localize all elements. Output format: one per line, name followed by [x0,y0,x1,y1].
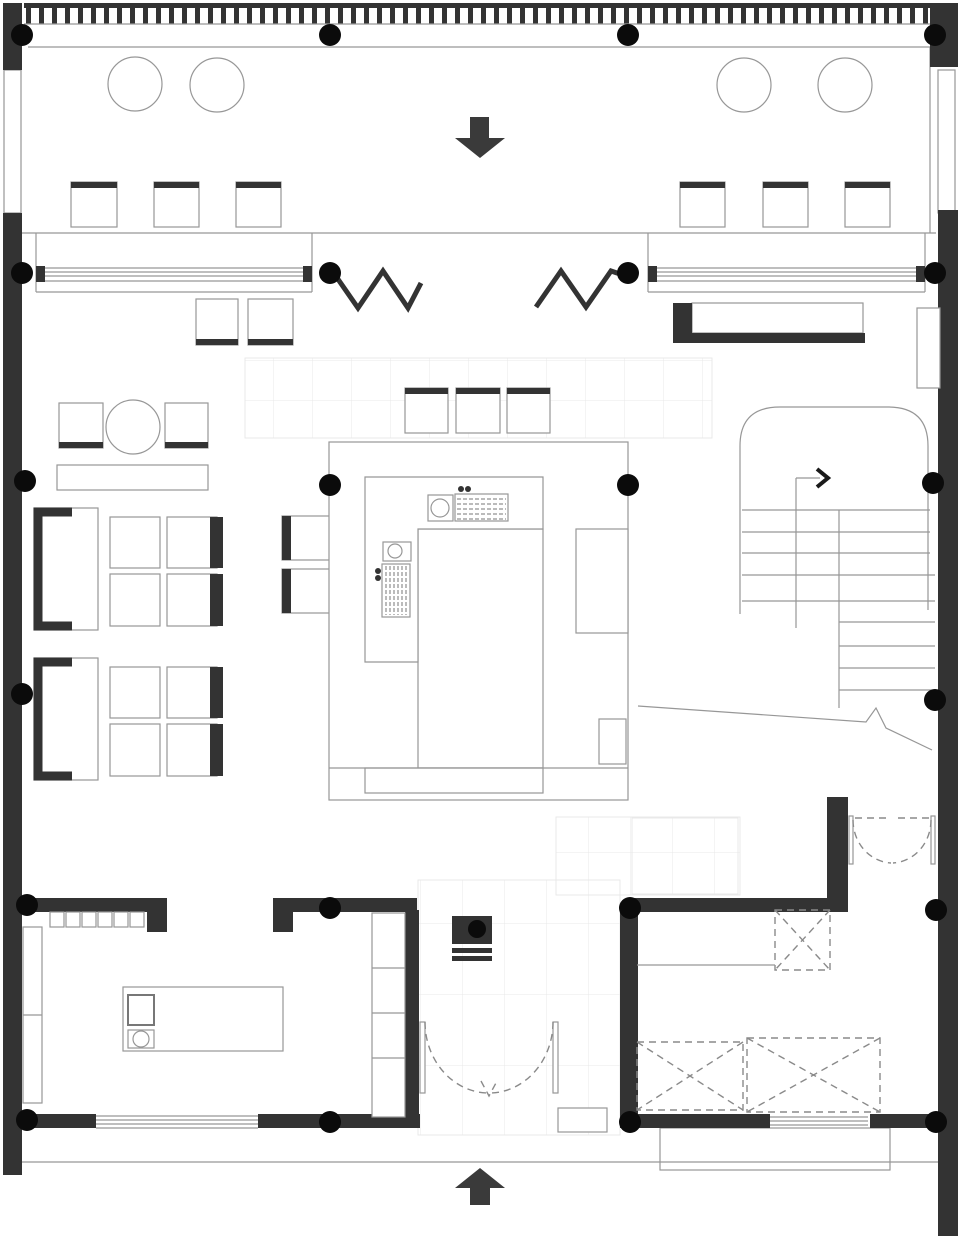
hall-stool-north-back [248,339,293,345]
sideboard-group [692,303,940,388]
lounge-chair [165,403,208,448]
column [11,24,33,46]
side-chair-back [282,516,291,560]
exterior-wall [938,210,958,1236]
cooktop-knob [375,575,381,581]
cooktop-grill-h [455,494,508,521]
side-chair-back [282,569,291,613]
entry-step-group [558,1108,607,1132]
side-wall-window [938,70,955,213]
hall-stove-ring-group [468,920,486,938]
entrance-arrow-north-group [455,117,505,158]
cooktop-grill-v-group [382,564,410,617]
sideboard-back [673,303,692,343]
terrace-table [717,58,771,112]
terrace-stool [845,182,890,227]
lounge-chair-back [165,442,208,448]
kitchen-island [365,768,543,793]
terrace-stool-back [154,182,199,188]
column [319,474,341,496]
hall-stool-north [196,299,238,345]
sw-worktable [128,1030,154,1048]
lounge-chair [59,403,103,448]
column [319,262,341,284]
terrace-stool-back [680,182,725,188]
lounge-bench-group [57,465,208,490]
hall-stove-unit [452,956,492,961]
sw-counter-item [98,912,112,927]
sofa [34,658,98,780]
cooktop-grill-h-group [455,494,508,521]
room-sw-wall [273,898,417,912]
side-chair-group [282,516,330,613]
glazing-caps [36,266,45,282]
column [924,262,946,284]
hall-stool-north [248,299,293,345]
lounge-chair-back [59,442,103,448]
lounge-bench [57,465,208,490]
ottoman-group [110,517,217,776]
ottoman-back [210,517,223,568]
entry-step [558,1108,607,1132]
sideboard [692,303,863,333]
entrance-arrow-north [455,117,505,158]
tile-floor [418,880,620,1135]
south-terrace-slab-group [660,1128,890,1170]
cooktop-knob [458,486,464,492]
terrace-stool-group [71,182,890,227]
room-sw-wall [405,910,419,1128]
terrace-stool [154,182,199,227]
se-door-leaf [931,816,935,864]
column [619,1111,641,1133]
cooktop-knob [465,486,471,492]
se-door-swing [893,820,931,863]
sw-shelving [372,913,405,1117]
terrace-stool-back [236,182,281,188]
canopy-hatch-group [24,8,930,24]
lounge-table [106,400,160,454]
ottoman-back [210,574,223,626]
se-door-leaf [849,816,853,864]
sw-counter-item [130,912,144,927]
ottoman [110,574,160,626]
column [617,474,639,496]
kitchen-island [599,719,626,764]
hall-stool-center-group [405,388,550,433]
column [11,262,33,284]
south-terrace-slab [660,1128,890,1170]
ottoman-back [210,667,223,718]
room-sw-wall [147,898,167,932]
floor-plan-canvas [0,0,960,1246]
stair-break-line [638,706,932,750]
column [617,262,639,284]
terrace-stool-back [71,182,117,188]
hall-stool-north-back [196,339,238,345]
column [16,894,38,916]
sw-counter-item [66,912,80,927]
terrace-table-group [108,57,872,112]
terrace-table [108,57,162,111]
entrance-arrow-south-group [455,1168,505,1205]
canopy-edge-group [24,3,930,8]
kitchen-island [576,529,628,633]
terrace-stool [236,182,281,227]
ottoman-back [210,724,223,776]
entrance-arrow-south [455,1168,505,1205]
terrace-lines-group [22,24,936,292]
se-shaft-box-x [747,1038,880,1112]
column [619,897,641,919]
column [319,897,341,919]
room-se-wall [620,907,638,1128]
se-door-swing [853,820,891,863]
sw-worktable-group [123,987,283,1051]
glazing-caps [916,266,925,282]
se-door-leaf-group [849,816,935,864]
column [319,1111,341,1133]
column [922,472,944,494]
column [924,24,946,46]
column [925,899,947,921]
terrace-stool-back [763,182,808,188]
canopy-edge [24,3,930,8]
ottoman [167,667,217,718]
hall-stool-center [456,388,500,433]
ottoman-back-group [210,517,223,776]
ottoman [110,724,160,776]
canopy-hatch [24,8,930,24]
ottoman [167,724,217,776]
ottoman [110,667,160,718]
terrace-stool-back [845,182,890,188]
column [14,470,36,492]
ottoman [167,574,217,626]
column [11,683,33,705]
ottoman [167,517,217,568]
floor-plan [0,0,960,1246]
terrace-stool [763,182,808,227]
sw-counter-item [114,912,128,927]
se-door-swing-group [853,820,931,863]
tile-floor [632,818,738,894]
room-sw-wall [20,898,167,912]
column [16,1109,38,1131]
terrace-stool [680,182,725,227]
sw-shelving-group [372,913,405,1117]
terrace-table [190,58,244,112]
column [924,689,946,711]
ottoman [110,517,160,568]
hall-stove-unit [452,948,492,953]
entry-door-leaf [553,1022,558,1093]
hall-stool-center-back [456,388,500,394]
entry-door-leaf [420,1022,425,1093]
column [319,24,341,46]
hall-stove-ring [468,920,486,938]
sofa [34,508,98,630]
se-shaft-box-group [637,910,880,1112]
sw-counter-item [82,912,96,927]
lounge-table-group [106,400,160,454]
stair-tread-group [742,510,935,708]
sw-counter-item-group [50,912,144,927]
folding-door [536,271,626,307]
room-se-wall [827,797,848,907]
room-se-wall [625,1114,770,1128]
terrace-table [818,58,872,112]
sw-counter-item [50,912,64,927]
sideboard-back [690,333,865,343]
column [925,1111,947,1133]
hall-stool-center [507,388,550,433]
folding-door-group [333,271,626,308]
kitchen-island [418,529,543,768]
hall-stool-north-group [196,299,293,345]
cooktop-knob [375,568,381,574]
column [617,24,639,46]
hall-stool-center-back [405,388,448,394]
stair-break-line-group [638,706,932,750]
hall-stool-center [405,388,448,433]
glazing-caps [648,266,657,282]
hall-stool-center-back [507,388,550,394]
terrace-stool [71,182,117,227]
sofa-group [34,508,98,780]
glazing-caps [303,266,312,282]
side-wall-window [4,70,21,213]
folding-door [333,271,421,308]
sideboard [917,308,940,388]
